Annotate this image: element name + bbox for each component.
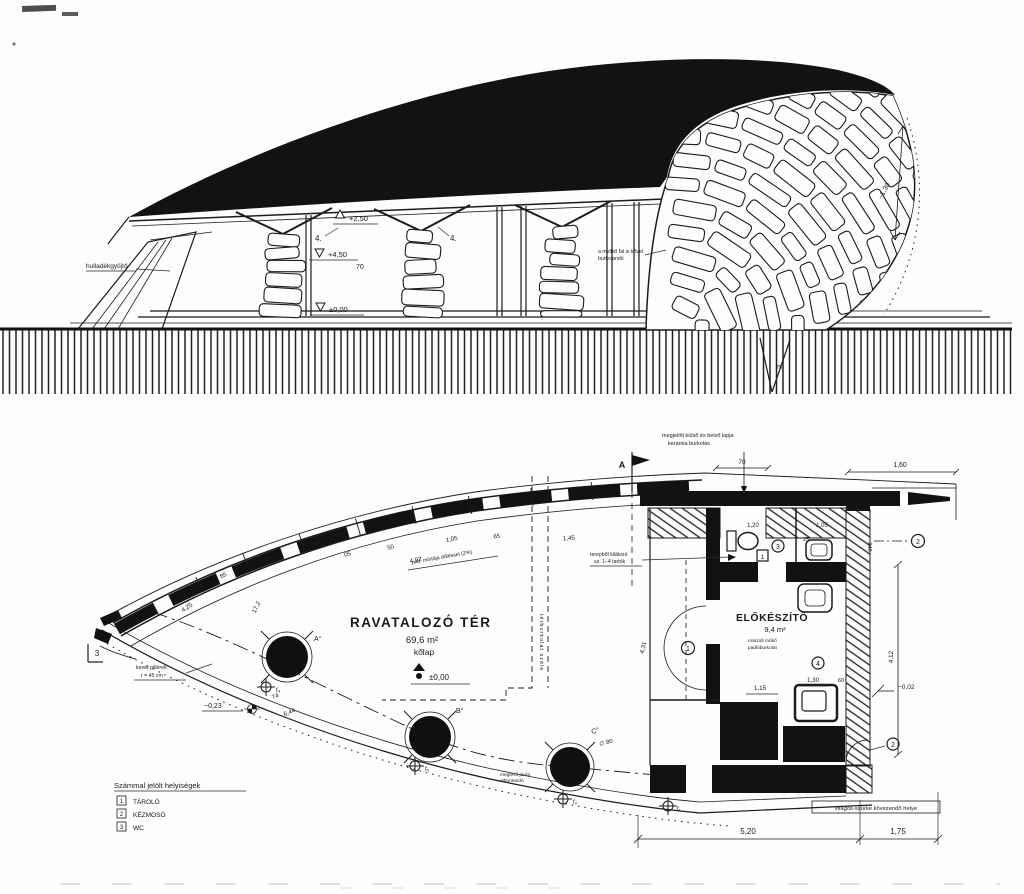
dim-160: 1,60 (893, 462, 907, 469)
dim-105a: 1,05 (445, 535, 459, 544)
main-room-floor: kőlap (414, 647, 435, 657)
svg-text:2: 2 (891, 742, 895, 749)
floor-plan: A (88, 433, 959, 848)
dim-105b: 1,05 (816, 523, 828, 529)
pillar-diameter-label: ∅ 80 (599, 737, 615, 747)
boxed-room-number-1: 1 (757, 550, 768, 561)
svg-text:3: 3 (120, 825, 124, 831)
pillar-note-2: r = 45 cm (141, 673, 163, 679)
legend-item-1: 1 TÁROLÓ (117, 796, 160, 806)
main-room-name: RAVATALOZÓ TÉR (350, 615, 492, 630)
wall-cladding-note-2: burkolandó (598, 256, 624, 262)
elevation-view: ~1,30 hulladékgyűjtő +2,50 4. 4. +4,50 7… (0, 7, 1012, 394)
prep-room-name: ELŐKÉSZÍTŐ (736, 611, 808, 624)
dim-25: 25 (803, 537, 809, 543)
supports-note-1: terepből kilátszó (590, 552, 628, 558)
dim-65: 65 (493, 533, 501, 540)
legend-item-label: KÉZMOSÓ (133, 810, 166, 819)
zero-level-label: ±0,00 (329, 305, 348, 314)
dim-520: 5,20 (740, 827, 756, 836)
svg-text:3: 3 (776, 544, 780, 551)
wall-cladding-note-1: a mellső fal is kővel (598, 249, 643, 255)
pillar-b (404, 711, 456, 763)
dim-115: 1,15 (754, 685, 767, 692)
pillar-note-1: kerek pillérek (136, 665, 167, 671)
top-cladding-note-1: megjelölt külső és belső lapja (662, 433, 734, 439)
main-room-level-marker: ±0,00 (411, 663, 470, 684)
prep-room-area: 9,4 m² (764, 625, 786, 634)
footing-markers (257, 678, 677, 815)
strut-number-left: 4. (315, 234, 322, 243)
section-line-a: A (619, 452, 650, 590)
svg-text:4: 4 (816, 661, 820, 668)
level-triangle-icon (336, 210, 345, 218)
prep-room-note-2: padlóburkolat (748, 645, 777, 651)
dim-412: 4,12 (888, 650, 895, 663)
supports-note-2: sz. 1–4 tartók (594, 559, 626, 565)
stone-pillar-1 (259, 233, 306, 318)
dim-85: 85 (219, 572, 228, 580)
site-ground-hatch (0, 323, 1012, 394)
legend-item-3: 3 WC (117, 822, 144, 832)
legend-item-2: 2 KÉZMOSÓ (117, 809, 166, 819)
marker-f1-label: f₁ (677, 806, 681, 813)
marker-f3-label: f₅ (425, 766, 430, 773)
legend-item-label: WC (133, 825, 144, 832)
slope-value: 75 (776, 365, 782, 371)
demolish-note-2: elbontandó (500, 778, 524, 784)
svg-text:világos-szürke kövezendő helye: világos-szürke kövezendő helye (835, 806, 917, 812)
beam-dimension: 70 (356, 264, 364, 271)
pillar-a-label: A° (314, 635, 322, 643)
architectural-drawing: ~1,30 hulladékgyűjtő +2,50 4. 4. +4,50 7… (0, 0, 1024, 894)
dim-145: 1,45 (563, 534, 576, 542)
dim-70: 70 (738, 459, 746, 466)
svg-text:1: 1 (120, 799, 124, 805)
strut-number-right: 4. (450, 234, 457, 243)
dim-175: 1,75 (890, 827, 906, 836)
demolish-note-1: meglévő járda (500, 772, 530, 778)
dim-60: 60 (838, 678, 844, 684)
svg-text:3: 3 (95, 649, 100, 658)
paving-edge-note: térburkolat széle (538, 614, 544, 671)
stone-pillar-2 (401, 229, 444, 318)
legend-title: Számmal jelölt helyiségek (114, 781, 201, 790)
dim-130: 1,30 (807, 677, 820, 684)
left-ramp (78, 232, 212, 329)
top-cladding-note-2: kerámia burkolás (668, 441, 710, 447)
svg-text:±0,00: ±0,00 (429, 673, 450, 682)
marker-f2-label: f₂ (573, 799, 578, 806)
svg-text:1: 1 (761, 554, 765, 561)
dim-431: 4,31 (639, 641, 648, 655)
dim-240: 240 (866, 542, 872, 551)
dim-120: 1,20 (747, 523, 759, 529)
dim-05b: 05 (344, 551, 353, 559)
legend-item-label: TÁROLÓ (133, 797, 160, 806)
ridge-level-label: +2,50 (349, 214, 368, 223)
main-room-area: 69,6 m² (406, 635, 438, 646)
prep-table-fixture (795, 685, 837, 721)
toilet-fixture (727, 531, 758, 551)
svg-text:2: 2 (120, 812, 124, 818)
scanned-drawing-page: ~1,30 hulladékgyűjtő +2,50 4. 4. +4,50 7… (0, 0, 1024, 894)
dim-172: 17,2 (251, 600, 263, 614)
plan-pillars: A° B° C° ∅ 80 (261, 631, 614, 792)
svg-text:2: 2 (916, 539, 920, 546)
pillar-c-label: C° (590, 726, 600, 736)
canopy-level-label: +4,50 (328, 250, 347, 259)
section-marker-label: A (619, 460, 626, 470)
dim-50: 50 (387, 544, 395, 551)
dim-644: 6,44 (283, 707, 297, 718)
stone-pillar-3 (539, 225, 584, 317)
level-minus-023: −0,23 (204, 703, 222, 710)
room-labels: RAVATALOZÓ TÉR 69,6 m² kőlap ±0,00 ELŐKÉ… (350, 611, 808, 684)
prep-room-note-1: csiszolt műkő (748, 638, 777, 644)
svg-text:1: 1 (686, 646, 690, 653)
pillar-c (545, 742, 595, 792)
level-triangle-icon (316, 303, 325, 311)
waste-label: hulladékgyűjtő (86, 263, 128, 270)
level-triangle-icon (315, 249, 324, 257)
dim-74: 74 (271, 693, 280, 701)
legend: Számmal jelölt helyiségek 1 TÁROLÓ 2 KÉZ… (114, 781, 246, 832)
pillar-a (261, 631, 313, 683)
level-minus-002: −0,02 (898, 684, 915, 691)
pillar-b-label: B° (456, 707, 464, 715)
